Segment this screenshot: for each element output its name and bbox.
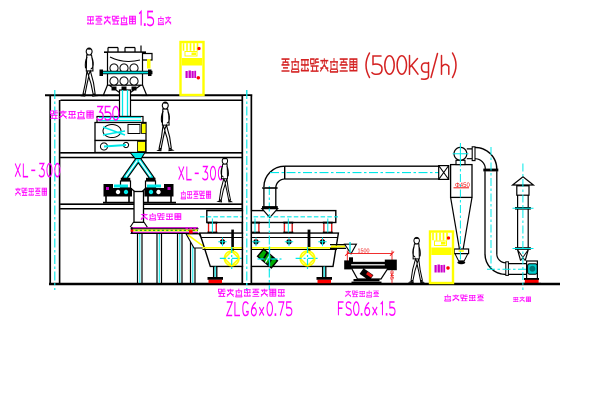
svg-text:345: 345 xyxy=(388,271,394,280)
svg-text:1500: 1500 xyxy=(358,249,370,255)
